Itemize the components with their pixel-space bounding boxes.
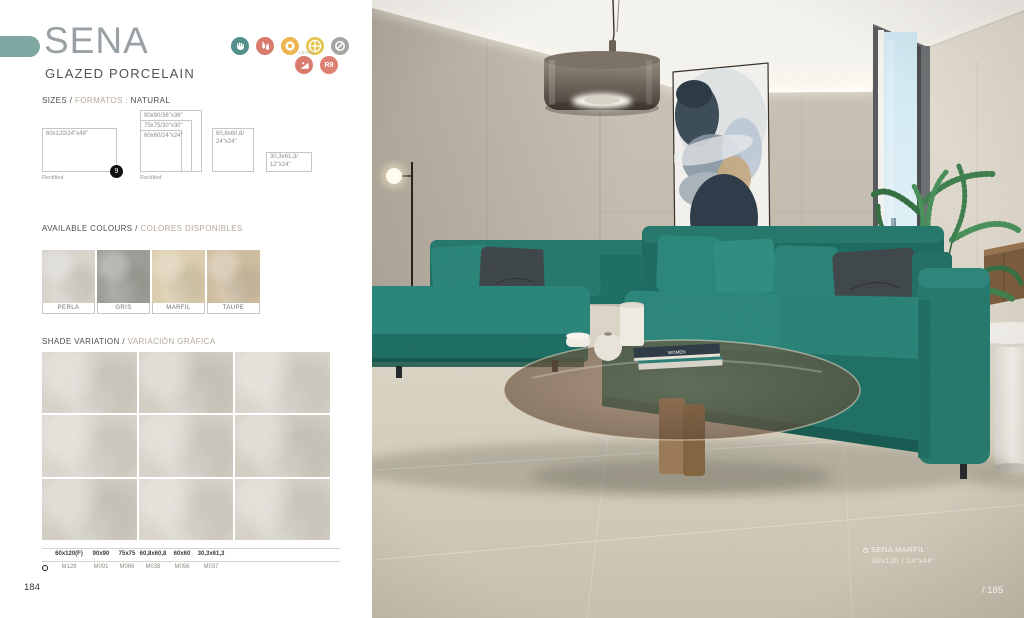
col-size: 75x75 (119, 551, 136, 557)
hand-icon (231, 37, 249, 55)
shade-variation-grid (42, 352, 330, 540)
thickness-value: 9 (115, 168, 119, 175)
shade-tile (139, 352, 234, 413)
thickness-badge: 9 (110, 165, 123, 178)
colours-heading-en: AVAILABLE COLOURS / (42, 224, 138, 233)
sizes-heading-en: SIZES / (42, 96, 72, 105)
swatch-label: PERLA (42, 303, 95, 314)
slip-rating-icon: R9 (320, 56, 338, 74)
sizes-heading: SIZES / FORMATOS : NATURAL (42, 96, 170, 105)
col-size: 60,8x60,8 (140, 551, 167, 557)
swatch-chip (42, 250, 95, 303)
col-code: M066 (119, 564, 134, 570)
swatch-chip (207, 250, 260, 303)
swatch-label: TAUPE (207, 303, 260, 314)
level-label: LEVEL (299, 50, 316, 55)
swatch-taupe: TAUPE (207, 250, 260, 314)
table-rule-top (42, 548, 340, 549)
shade-tile (235, 415, 330, 476)
shade-tile (42, 352, 137, 413)
page-number-right: / 185 (982, 585, 1003, 596)
catalog-page: SENA GLAZED PORCELAIN (0, 0, 1024, 618)
room-photo: WOMEN (372, 0, 1024, 618)
col-size: 90x90 (93, 551, 110, 557)
ring-icon (281, 37, 299, 55)
col-code: M037 (203, 564, 218, 570)
swatch-label: GRIS (97, 303, 150, 314)
no-sign-icon (331, 37, 349, 55)
shade-tile (42, 415, 137, 476)
size-box-60x60: 60x60/24"x24" (140, 130, 182, 172)
photo-caption: SENA MARFIL 60x120 / 24"x48" (863, 545, 935, 567)
swatch-chip (152, 250, 205, 303)
caption-product: SENA MARFIL (871, 545, 925, 554)
shade-tile (139, 479, 234, 540)
product-subtitle: GLAZED PORCELAIN (45, 66, 195, 81)
shade-tile (42, 479, 137, 540)
shade-heading-es: VARIACIÓN GRÁFICA (128, 337, 216, 346)
slip-ramp-icon (295, 56, 313, 74)
size-box-60-8: 60,8x60,8/ 24"x24" (212, 128, 254, 172)
col-size: 60x120(F) (55, 551, 83, 557)
colours-heading: AVAILABLE COLOURS / COLORES DISPONIBLES (42, 224, 243, 233)
colour-swatches: PERLA GRIS MARFIL TAUPE (42, 250, 260, 314)
product-info-panel: SENA GLAZED PORCELAIN (0, 0, 372, 618)
col-size: 30,3x61,3 (198, 551, 225, 557)
page-number-left: 184 (24, 582, 40, 593)
vignette (372, 0, 1024, 618)
table-rule-mid (42, 561, 340, 562)
shade-tile (139, 415, 234, 476)
col-code: M128 (61, 564, 76, 570)
sizes-heading-finish: NATURAL (131, 96, 171, 105)
slip-rating-label: R9 (325, 62, 334, 69)
size-box-60x120: 60x120/24"x48" (42, 128, 117, 172)
col-code: M038 (145, 564, 160, 570)
caption-size: 60x120 / 24"x48" (872, 556, 935, 567)
swatch-perla: PERLA (42, 250, 95, 314)
product-title: SENA (44, 22, 149, 59)
colours-heading-es: COLORES DISPONIBLES (140, 224, 242, 233)
col-code: M091 (93, 564, 108, 570)
swatch-marfil: MARFIL (152, 250, 205, 314)
caption-ring-icon (863, 548, 868, 553)
shade-tile (235, 479, 330, 540)
size-box-30-3: 30,3x61,3/ 12"x24" (266, 152, 312, 172)
shade-heading-en: SHADE VARIATION / (42, 337, 125, 346)
colour-row-marker (42, 565, 48, 571)
rectified-label: Rectified (42, 175, 63, 181)
sizes-heading-es: FORMATOS : (75, 96, 128, 105)
footprints-icon (256, 37, 274, 55)
swatch-label: MARFIL (152, 303, 205, 314)
rectified-label: Rectified (140, 175, 161, 181)
col-size: 60x60 (174, 551, 191, 557)
shade-tile (235, 352, 330, 413)
swatch-gris: GRIS (97, 250, 150, 314)
room-scene: WOMEN (372, 0, 1024, 618)
shade-heading: SHADE VARIATION / VARIACIÓN GRÁFICA (42, 337, 216, 346)
swatch-chip (97, 250, 150, 303)
accent-tab (0, 36, 40, 57)
col-code: M056 (174, 564, 189, 570)
